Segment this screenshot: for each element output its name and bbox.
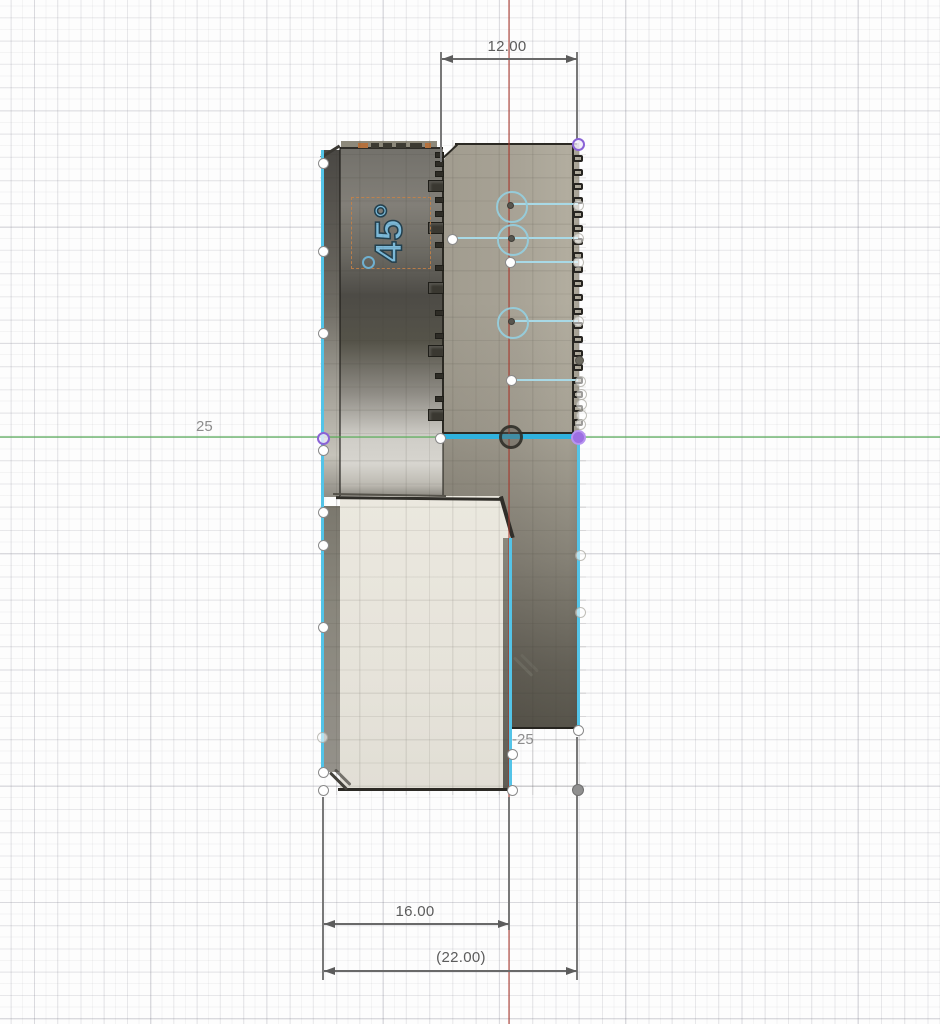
sketch-point-faint[interactable] bbox=[573, 257, 584, 268]
tooth-small bbox=[435, 310, 444, 316]
sketch-point-purple-ring[interactable] bbox=[317, 432, 330, 445]
rear-panel-lower-left-edge bbox=[442, 437, 444, 497]
sketch-point-purple-fill[interactable] bbox=[571, 430, 586, 445]
arrow-right-22 bbox=[566, 967, 577, 975]
sketch-point-white[interactable] bbox=[318, 328, 329, 339]
sketch-point-white[interactable] bbox=[318, 622, 329, 633]
tooth-right bbox=[573, 225, 583, 232]
top-face-dash bbox=[396, 143, 406, 148]
sketch-point-faint[interactable] bbox=[575, 607, 586, 618]
dim-label-12[interactable]: 12.00 bbox=[469, 38, 545, 55]
tooth-right bbox=[573, 364, 583, 371]
top-face-dash bbox=[425, 143, 431, 148]
ext-line-top-right bbox=[576, 52, 578, 140]
sketch-point-white[interactable] bbox=[318, 158, 329, 169]
engraved-text-label: 45° bbox=[369, 202, 412, 262]
ext-line-bottom-right bbox=[576, 737, 578, 980]
arrow-left-12 bbox=[442, 55, 453, 63]
dim-line-12[interactable] bbox=[442, 58, 577, 60]
rear-panel-top-edge bbox=[455, 143, 577, 145]
sketch-point-faint[interactable] bbox=[317, 732, 328, 743]
ext-line-top-left bbox=[440, 52, 442, 162]
tooth-small bbox=[435, 197, 444, 203]
sketch-point-white[interactable] bbox=[318, 785, 329, 796]
sketch-point-faint[interactable] bbox=[575, 550, 586, 561]
sketch-point-center[interactable] bbox=[507, 202, 514, 209]
tooth-small bbox=[435, 171, 444, 177]
tooth-right bbox=[573, 280, 583, 287]
lower-block-front-face[interactable] bbox=[340, 496, 512, 791]
construction-line[interactable] bbox=[510, 261, 578, 263]
sketch-point-white[interactable] bbox=[318, 246, 329, 257]
tooth-large bbox=[428, 180, 444, 192]
top-face-dash bbox=[371, 143, 379, 148]
tooth-right bbox=[573, 336, 583, 343]
tooth-small bbox=[435, 396, 444, 402]
grid-label-x: 25 bbox=[196, 418, 213, 435]
sketch-point-white[interactable] bbox=[318, 445, 329, 456]
arrow-left-16 bbox=[324, 920, 335, 928]
tooth-small bbox=[435, 333, 444, 339]
tooth-small bbox=[435, 373, 444, 379]
tooth-right bbox=[573, 155, 583, 162]
tooth-right bbox=[573, 294, 583, 301]
tooth-small bbox=[435, 242, 444, 248]
grid-label-y: -25 bbox=[512, 731, 534, 748]
tooth-right bbox=[573, 308, 583, 315]
left-profile-edge[interactable] bbox=[321, 150, 324, 772]
lower-block-bottom-edge bbox=[338, 788, 513, 791]
rear-panel-bottom-edge bbox=[512, 727, 579, 729]
dim-line-16[interactable] bbox=[324, 923, 509, 925]
sketch-point-faint[interactable] bbox=[573, 316, 584, 327]
arrow-right-16 bbox=[498, 920, 509, 928]
sketch-point-faint[interactable] bbox=[576, 389, 587, 400]
tooth-large bbox=[428, 409, 444, 421]
sketch-point-gray-fill[interactable] bbox=[572, 784, 584, 796]
ext-line-bottom-mid bbox=[508, 797, 510, 930]
tooth-right bbox=[573, 211, 583, 218]
sketch-point-white[interactable] bbox=[505, 257, 516, 268]
dim-label-22[interactable]: (22.00) bbox=[419, 949, 503, 966]
arrow-left-22 bbox=[324, 967, 335, 975]
rear-panel-lower-right-edge[interactable] bbox=[577, 437, 580, 728]
tooth-large bbox=[428, 282, 444, 294]
sketch-point-white[interactable] bbox=[318, 540, 329, 551]
sketch-point-white[interactable] bbox=[507, 785, 518, 796]
sketch-point-white[interactable] bbox=[318, 767, 329, 778]
sketch-point-white[interactable] bbox=[435, 433, 446, 444]
tooth-right bbox=[573, 183, 583, 190]
top-face-dash bbox=[383, 143, 392, 148]
dim-label-16[interactable]: 16.00 bbox=[377, 903, 453, 920]
sketch-point-white[interactable] bbox=[573, 725, 584, 736]
sketch-point-white[interactable] bbox=[447, 234, 458, 245]
sketch-point-center[interactable] bbox=[508, 318, 515, 325]
sketch-point-white[interactable] bbox=[318, 507, 329, 518]
ext-line-bottom-left bbox=[322, 797, 324, 980]
upper-body-corner-edge bbox=[339, 147, 341, 497]
engraved-degree-ring bbox=[362, 256, 375, 269]
sketch-point-faint[interactable] bbox=[576, 399, 587, 410]
sketch-point-origin[interactable] bbox=[499, 425, 523, 449]
sketch-point-faint[interactable] bbox=[575, 376, 586, 387]
construction-line[interactable] bbox=[511, 379, 578, 381]
sketch-point-purple-ring[interactable] bbox=[572, 138, 585, 151]
sketch-point-white[interactable] bbox=[506, 375, 517, 386]
top-face-dash bbox=[358, 143, 368, 148]
sketch-canvas: 45° 12.00 16.00 (22. bbox=[0, 0, 940, 1024]
top-face-dash bbox=[410, 143, 422, 148]
sketch-point-white[interactable] bbox=[507, 749, 518, 760]
tooth-small bbox=[435, 265, 444, 271]
arrow-right-12 bbox=[566, 55, 577, 63]
dim-line-22[interactable] bbox=[324, 970, 577, 972]
sketch-point-center[interactable] bbox=[508, 235, 515, 242]
sketch-point-faint[interactable] bbox=[575, 419, 586, 430]
tooth-right bbox=[573, 169, 583, 176]
sketch-point-faint[interactable] bbox=[573, 233, 584, 244]
tooth-large bbox=[428, 345, 444, 357]
tooth-small bbox=[435, 211, 444, 217]
sketch-point-faint[interactable] bbox=[573, 200, 584, 211]
sketch-point-gray-dot[interactable] bbox=[575, 356, 584, 365]
